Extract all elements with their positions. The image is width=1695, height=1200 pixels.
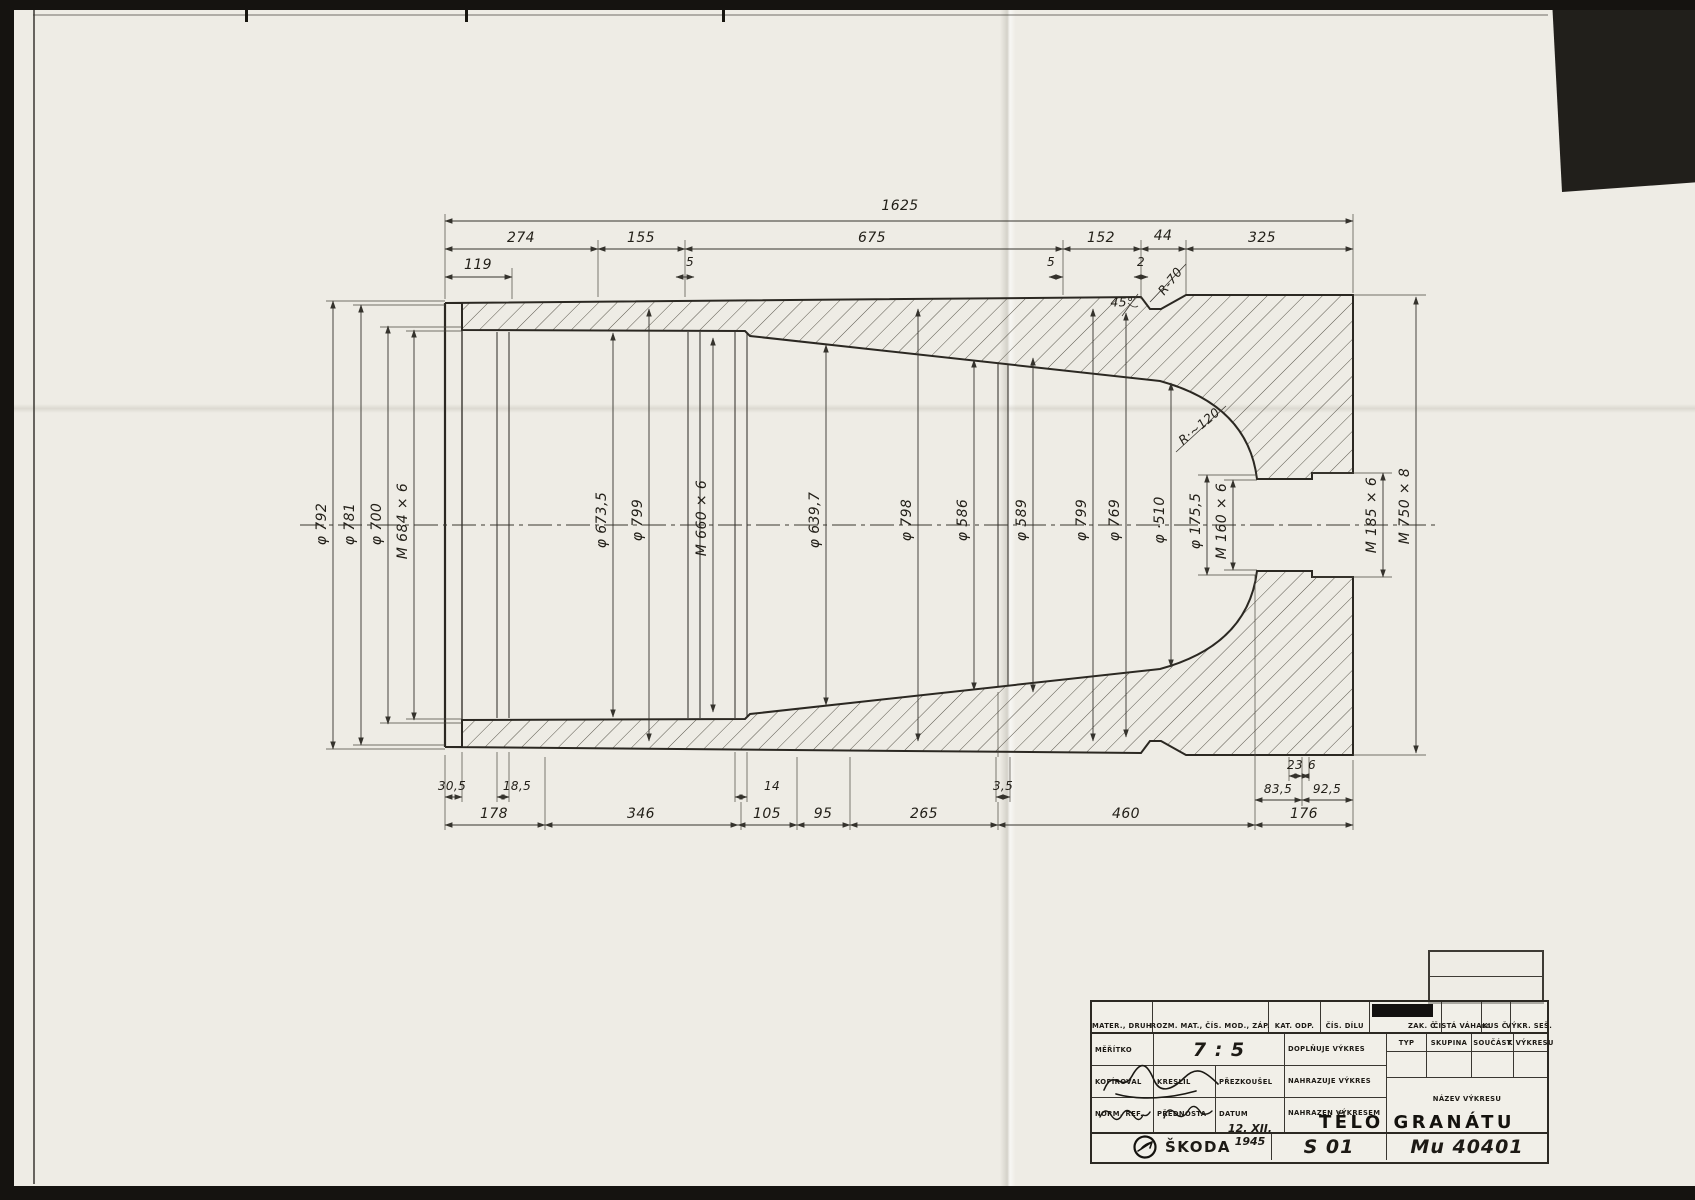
- field-vykr-ses: VÝKR. SEŠ.: [1506, 1022, 1552, 1030]
- dim-label-dia-586: φ 586: [955, 499, 971, 541]
- signature-prednosta-icon: [1157, 1100, 1215, 1128]
- dim-label-total-length: 1625: [881, 198, 918, 214]
- field-mater-druh: MATER., DRUH: [1092, 1022, 1152, 1030]
- annotation-45-degrees: 45°: [1110, 295, 1133, 310]
- dim-label-dia-769: φ 769: [1107, 499, 1123, 541]
- dim-label-m684: M 684 × 6: [395, 483, 411, 559]
- dim-label-83-5: 83,5: [1264, 782, 1292, 796]
- drawing-title: TĚLO GRANÁTU: [1292, 1112, 1542, 1133]
- redaction-bar: [1372, 1004, 1434, 1017]
- scanned-drawing-page: 1625 274 155 675 152 44 325 119 5 5 2 45…: [0, 0, 1695, 1200]
- scan-edge-top: [0, 0, 1695, 10]
- scale-value: 7 : 5: [1193, 1039, 1245, 1061]
- scan-edge-bottom: [0, 1186, 1695, 1200]
- dim-label-95: 95: [814, 806, 833, 822]
- dim-label-176: 176: [1290, 806, 1318, 822]
- field-meritko: MĚŘÍTKO: [1095, 1046, 1132, 1054]
- dim-label-92-5: 92,5: [1313, 782, 1341, 796]
- dim-label-460: 460: [1112, 806, 1140, 822]
- field-skupina: SKUPINA: [1431, 1039, 1467, 1047]
- scan-edge-left: [0, 0, 14, 1200]
- dim-label-m660: M 660 × 6: [694, 480, 710, 556]
- field-kat-odp: KAT. ODP.: [1275, 1022, 1314, 1030]
- dim-label-5a: 5: [686, 255, 694, 269]
- field-soucast: SOUČÁST: [1473, 1039, 1511, 1047]
- dim-label-2: 2: [1137, 255, 1145, 269]
- field-cis-dilu: ČÍS. DÍLU: [1326, 1022, 1364, 1030]
- field-nazev-vykresu: NÁZEV VÝKRESU: [1433, 1095, 1501, 1103]
- dim-label-18-5: 18,5: [503, 779, 531, 793]
- signature-kopiroval-kreslil-icon: [1096, 1060, 1236, 1102]
- dim-label-325: 325: [1248, 230, 1276, 246]
- dim-label-m185: M 185 × 6: [1364, 477, 1380, 553]
- field-nahrazuje-vykres: NAHRAZUJE VÝKRES: [1288, 1077, 1371, 1085]
- revision-box: [1428, 950, 1544, 1004]
- dim-label-dia-589: φ 589: [1014, 499, 1030, 541]
- dim-label-30-5: 30,5: [438, 779, 466, 793]
- dim-label-dia-510: φ ·510: [1152, 496, 1168, 543]
- field-typ: TYP: [1399, 1039, 1415, 1047]
- dim-label-346: 346: [627, 806, 655, 822]
- dim-label-m160: M 160 × 6: [1214, 483, 1230, 559]
- field-cista-vaha: ČISTÁ VÁHA: [1433, 1022, 1482, 1030]
- brand-name: ŠKODA: [1165, 1138, 1231, 1156]
- dim-label-dia-700: φ 700: [369, 503, 385, 545]
- dim-label-dia-792: φ 792: [314, 503, 330, 545]
- dim-label-m750: M 750 × 8: [1397, 468, 1413, 544]
- dim-label-dia-799b: φ 799: [1074, 499, 1090, 541]
- dim-label-44: 44: [1154, 228, 1173, 244]
- dim-label-3-5: 3,5: [993, 779, 1013, 793]
- skoda-winged-arrow-icon: [1132, 1134, 1158, 1160]
- dim-label-dia-799a: φ 799: [630, 499, 646, 541]
- title-block-bottom-row: ŠKODA S 01 Mu 40401: [1092, 1132, 1547, 1160]
- dim-label-119: 119: [464, 257, 492, 273]
- dim-label-152: 152: [1087, 230, 1115, 246]
- dim-label-675: 675: [858, 230, 886, 246]
- dim-label-105: 105: [753, 806, 781, 822]
- drawing-number: Mu 40401: [1410, 1136, 1523, 1158]
- dim-label-dia-798: φ 798: [899, 499, 915, 541]
- field-rozm-mat: ROZM. MAT., ČÍS. MOD., ZÁP.: [1151, 1022, 1270, 1030]
- title-block: MATER., DRUH ROZM. MAT., ČÍS. MOD., ZÁP.…: [1090, 1000, 1549, 1164]
- dim-label-5b: 5: [1047, 255, 1055, 269]
- field-k-vykresu: K VÝKRESU: [1507, 1039, 1554, 1047]
- dim-label-dia-175-5: φ 175,5: [1188, 493, 1204, 550]
- signature-norm-ref-icon: [1095, 1100, 1153, 1128]
- dim-label-265: 265: [910, 806, 938, 822]
- dim-label-178: 178: [480, 806, 508, 822]
- dim-label-23: 23: [1287, 758, 1303, 772]
- dim-label-274: 274: [507, 230, 535, 246]
- title-block-header-row: MATER., DRUH ROZM. MAT., ČÍS. MOD., ZÁP.…: [1092, 1002, 1547, 1034]
- top-wall-and-base: [445, 295, 1353, 479]
- field-doplnuje-vykres: DOPLŇUJE VÝKRES: [1288, 1045, 1365, 1053]
- dim-label-dia-781: φ 781: [342, 503, 358, 545]
- dim-label-dia-673-5: φ 673,5: [594, 492, 610, 549]
- sheet-number: S 01: [1304, 1136, 1355, 1158]
- field-datum: DATUM: [1219, 1110, 1248, 1118]
- dim-label-155: 155: [627, 230, 655, 246]
- dim-label-dia-639-7: φ 639,7: [807, 492, 823, 549]
- scan-dark-corner: [1552, 0, 1695, 192]
- dim-label-6: 6: [1308, 758, 1316, 772]
- dim-label-14: 14: [764, 779, 780, 793]
- bottom-wall-and-base: [445, 571, 1353, 755]
